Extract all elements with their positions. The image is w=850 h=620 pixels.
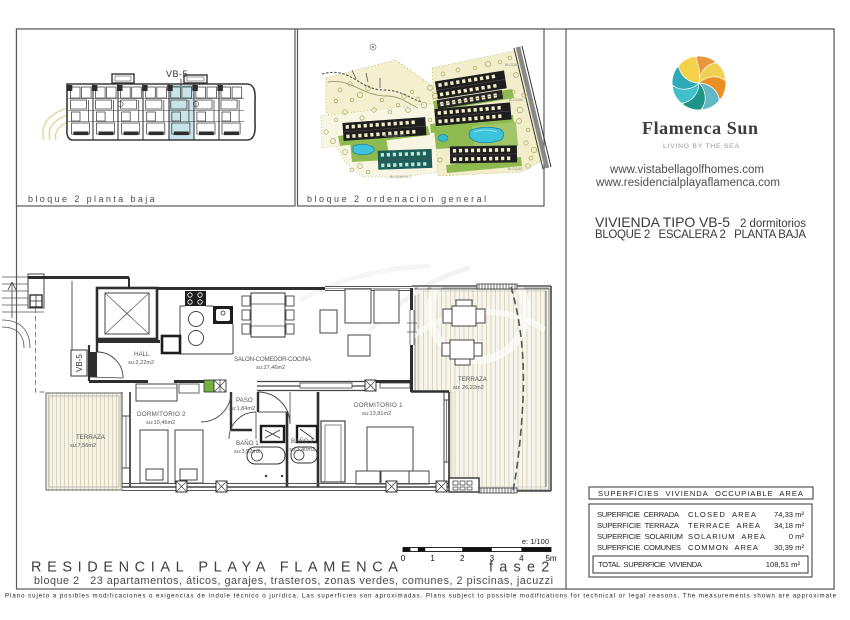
svg-text:SUPERFICIE TERRAZA: SUPERFICIE TERRAZA [597, 521, 680, 530]
svg-text:SOLARIUM AREA: SOLARIUM AREA [688, 532, 766, 541]
svg-text:SUPERFICIE SOLARIUM: SUPERFICIE SOLARIUM [597, 532, 683, 541]
svg-text:LIVING BY THE SEA: LIVING BY THE SEA [663, 143, 739, 150]
svg-text:SUPERFICIE CERRADA: SUPERFICIE CERRADA [597, 510, 680, 519]
svg-text:BLOQUE 2 ESCALERA 2 PLANTA: BLOQUE 2 ESCALERA 2 PLANTA BAJA [595, 229, 806, 241]
svg-text:su:10,46m2: su:10,46m2 [146, 420, 175, 426]
svg-text:su:27,46m2: su:27,46m2 [256, 365, 285, 371]
svg-text:TERRAZA: TERRAZA [458, 376, 488, 383]
svg-text:SUPERFICIE COMUNES: SUPERFICIE COMUNES [597, 543, 681, 552]
svg-text:su: 26,22m2: su: 26,22m2 [453, 385, 484, 391]
svg-text:BLOQUE: BLOQUE [505, 63, 520, 67]
svg-text:SUPERFICIES VIVIENDA OCCUPIA: SUPERFICIES VIVIENDA OCCUPIABLE AREA [598, 489, 804, 498]
svg-text:TOTAL SUPERFICIE VIVIENDA: TOTAL SUPERFICIE VIVIENDA [598, 560, 703, 569]
svg-text:74,33 m²: 74,33 m² [774, 510, 804, 519]
svg-text:BAÑO 2: BAÑO 2 [291, 438, 314, 445]
svg-text:bloque 2 planta baja: bloque 2 planta baja [28, 194, 157, 204]
svg-text:e: 1/100: e: 1/100 [522, 537, 549, 546]
svg-text:SALON-COMEDOR-COCINA: SALON-COMEDOR-COCINA [234, 356, 312, 363]
svg-text:su:2,22m2: su:2,22m2 [128, 360, 154, 366]
svg-text:TERRACE AREA: TERRACE AREA [688, 521, 761, 530]
svg-text:fase2: fase2 [489, 560, 555, 576]
svg-text:0 m²: 0 m² [789, 532, 805, 541]
svg-text:VB-5: VB-5 [75, 354, 84, 372]
svg-text:BAÑO 1: BAÑO 1 [236, 440, 259, 447]
svg-text:su:7,56m2: su:7,56m2 [70, 443, 96, 449]
svg-text:HALL: HALL [134, 351, 150, 358]
svg-text:30,39 m²: 30,39 m² [774, 543, 804, 552]
svg-text:www.residencialplayaflamenca.c: www.residencialplayaflamenca.com [595, 177, 780, 189]
svg-text:COMMON AREA: COMMON AREA [688, 543, 759, 552]
svg-text:DORMITORIO 2: DORMITORIO 2 [137, 411, 186, 418]
svg-text:PASO: PASO [236, 397, 253, 404]
svg-text:su:13,81m2: su:13,81m2 [362, 411, 391, 417]
svg-text:RESIDENCIAL PLAYA FLAMENCA: RESIDENCIAL PLAYA FLAMENCA [31, 560, 404, 576]
svg-text:www.vistabellagolfhomes.com: www.vistabellagolfhomes.com [609, 164, 764, 176]
svg-text:CLOSED AREA: CLOSED AREA [688, 510, 757, 519]
svg-text:34,18 m²: 34,18 m² [774, 521, 804, 530]
svg-text:DORMITORIO 1: DORMITORIO 1 [354, 402, 403, 409]
svg-text:su:3,52m2: su:3,52m2 [234, 449, 260, 455]
svg-text:VIVIENDA TIPO VB-5: VIVIENDA TIPO VB-5 [595, 214, 730, 230]
svg-text:Flamenca Sun: Flamenca Sun [642, 118, 758, 138]
svg-text:108,51 m²: 108,51 m² [766, 560, 801, 569]
svg-text:TERRAZA: TERRAZA [76, 434, 106, 441]
svg-text:bloque 2 ordenacion general: bloque 2 ordenacion general [307, 194, 489, 204]
svg-text:su:1,84m2: su:1,84m2 [229, 406, 255, 412]
svg-text:BLOQUE: BLOQUE [508, 167, 523, 171]
svg-text:bloque 2 23 apartamentos, át: bloque 2 23 apartamentos, áticos, garaje… [34, 575, 553, 587]
svg-text:2: 2 [460, 554, 465, 563]
svg-text:BLOQUE N 2: BLOQUE N 2 [390, 175, 411, 179]
svg-text:VB-5: VB-5 [166, 69, 188, 79]
svg-text:Plano sujeto a posibles modifi: Plano sujeto a posibles modificaciones o… [5, 593, 837, 600]
svg-text:BLOQUE N 1: BLOQUE N 1 [384, 134, 405, 138]
svg-text:BLOQUE: BLOQUE [509, 98, 524, 102]
svg-text:1: 1 [430, 554, 435, 563]
svg-text:su:3,40m2: su:3,40m2 [289, 447, 315, 453]
